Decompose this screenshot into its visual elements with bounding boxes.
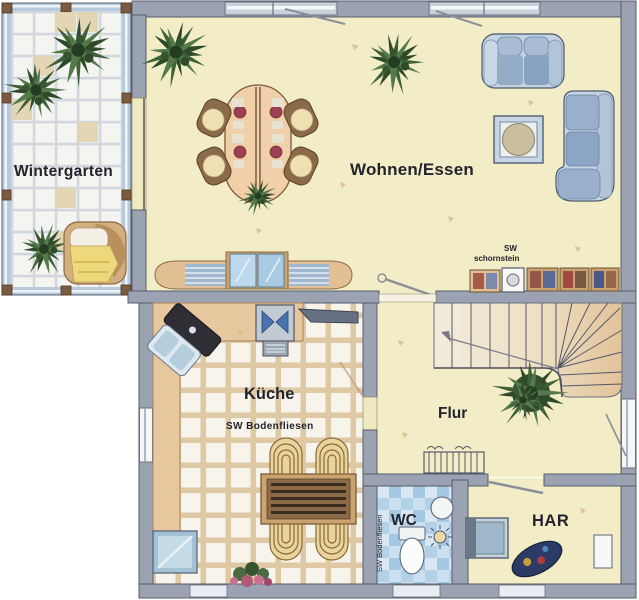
svg-text:WC: WC: [391, 512, 417, 529]
svg-text:Wintergarten: Wintergarten: [14, 163, 113, 180]
svg-text:SW Bodenfliesen: SW Bodenfliesen: [375, 514, 384, 572]
svg-text:Küche: Küche: [244, 385, 294, 403]
svg-text:Flur: Flur: [438, 405, 467, 422]
svg-text:Wohnen/Essen: Wohnen/Essen: [350, 160, 474, 179]
svg-text:SW Bodenfliesen: SW Bodenfliesen: [226, 421, 314, 432]
svg-text:HAR: HAR: [532, 512, 569, 530]
svg-text:schornstein: schornstein: [474, 254, 519, 263]
svg-text:SW: SW: [504, 244, 517, 253]
